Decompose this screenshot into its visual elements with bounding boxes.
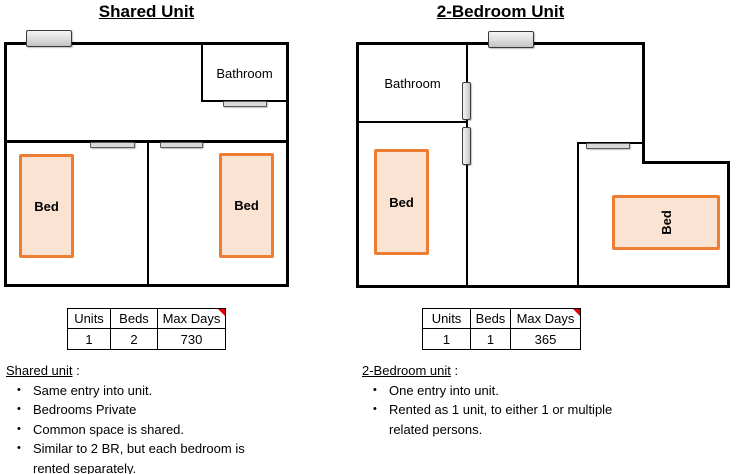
shared-bed-1: Bed <box>19 154 74 258</box>
2br-bedroom2-wall-left <box>577 142 579 285</box>
shared-maxdays-value: 730 <box>158 329 226 350</box>
2br-units-header: Units <box>423 309 471 329</box>
shared-wall-bottom <box>4 284 289 287</box>
shared-note-4: Similar to 2 BR, but each bedroom is ren… <box>33 439 245 474</box>
bullet-icon: • <box>373 400 389 439</box>
shared-bathroom-label: Bathroom <box>201 66 288 81</box>
list-item: • Bedrooms Private <box>6 400 296 420</box>
2br-beds-value: 1 <box>471 329 511 350</box>
2br-maxdays-value: 365 <box>511 329 581 350</box>
shared-bed-1-label: Bed <box>34 199 59 214</box>
shared-notes-heading-text: Shared unit <box>6 363 73 378</box>
list-item: • Same entry into unit. <box>6 381 296 401</box>
bullet-icon: • <box>17 381 33 401</box>
2br-wall-right-lower <box>727 161 730 288</box>
list-item: • One entry into unit. <box>362 381 672 401</box>
2br-wall-step <box>642 161 730 164</box>
shared-notes-heading: Shared unit : <box>6 361 296 381</box>
shared-maxdays-header: Max Days <box>158 309 226 329</box>
2br-notes-heading: 2-Bedroom unit : <box>362 361 672 381</box>
2br-entry-door-icon <box>488 31 534 48</box>
2br-bedroom2-door-icon <box>586 143 630 149</box>
bullet-icon: • <box>17 400 33 420</box>
shared-maxdays-header-label: Max Days <box>163 311 221 326</box>
shared-beds-header: Beds <box>111 309 158 329</box>
2br-bed-1: Bed <box>374 149 429 255</box>
shared-bedroom2-door-icon <box>160 142 203 148</box>
shared-stats-table: Units Beds Max Days 1 2 730 <box>67 308 226 350</box>
shared-bedroom-separator-wall <box>4 140 286 143</box>
2br-note-1: One entry into unit. <box>389 381 499 401</box>
shared-entry-door-icon <box>26 30 72 47</box>
shared-stats-header-row: Units Beds Max Days <box>68 309 226 329</box>
list-item: • Similar to 2 BR, but each bedroom is r… <box>6 439 296 474</box>
shared-bedroom-middle-wall <box>147 143 149 284</box>
shared-bed-2: Bed <box>219 153 274 258</box>
shared-notes-heading-colon: : <box>73 363 80 378</box>
2br-maxdays-header-label: Max Days <box>517 311 575 326</box>
2br-bed-2: Bed <box>612 195 720 250</box>
2br-maxdays-header: Max Days <box>511 309 581 329</box>
2br-bed-1-label: Bed <box>389 195 414 210</box>
2br-bed-2-label: Bed <box>659 210 674 235</box>
2br-stats-value-row: 1 1 365 <box>423 329 581 350</box>
2br-notes-heading-colon: : <box>451 363 458 378</box>
2br-unit-notes: 2-Bedroom unit : • One entry into unit. … <box>362 361 672 439</box>
comment-flag-icon <box>218 309 225 316</box>
2br-beds-header: Beds <box>471 309 511 329</box>
2br-note-2: Rented as 1 unit, to either 1 or multipl… <box>389 400 612 439</box>
bullet-icon: • <box>17 420 33 440</box>
2br-hall-wall <box>466 45 468 285</box>
shared-note-3: Common space is shared. <box>33 420 184 440</box>
floor-plan-figure: Shared Unit Bathroom Bed Bed Units Beds … <box>0 0 736 474</box>
shared-bed-2-label: Bed <box>234 198 259 213</box>
shared-unit-notes: Shared unit : • Same entry into unit. • … <box>6 361 296 474</box>
bullet-icon: • <box>17 439 33 474</box>
bullet-icon: • <box>373 381 389 401</box>
list-item: • Rented as 1 unit, to either 1 or multi… <box>362 400 672 439</box>
2br-bathroom-wall-bottom <box>359 121 466 123</box>
2br-stats-header-row: Units Beds Max Days <box>423 309 581 329</box>
shared-note-2: Bedrooms Private <box>33 400 136 420</box>
2br-notes-heading-text: 2-Bedroom unit <box>362 363 451 378</box>
two-bedroom-unit-title: 2-Bedroom Unit <box>356 2 645 22</box>
shared-stats-value-row: 1 2 730 <box>68 329 226 350</box>
2br-stats-table: Units Beds Max Days 1 1 365 <box>422 308 581 350</box>
2br-bathroom-label: Bathroom <box>359 76 466 91</box>
list-item: • Common space is shared. <box>6 420 296 440</box>
2br-bedroom1-door-icon <box>462 127 471 165</box>
comment-flag-icon <box>573 309 580 316</box>
shared-wall-left <box>4 42 7 287</box>
shared-beds-value: 2 <box>111 329 158 350</box>
shared-bedroom1-door-icon <box>90 142 135 148</box>
shared-units-header: Units <box>68 309 111 329</box>
2br-wall-right-upper <box>642 42 645 164</box>
2br-units-value: 1 <box>423 329 471 350</box>
shared-bathroom-door-icon <box>223 101 267 107</box>
2br-wall-bottom <box>356 285 730 288</box>
shared-unit-title: Shared Unit <box>4 2 289 22</box>
shared-note-1: Same entry into unit. <box>33 381 152 401</box>
2br-bathroom-door-icon <box>462 82 471 120</box>
shared-units-value: 1 <box>68 329 111 350</box>
